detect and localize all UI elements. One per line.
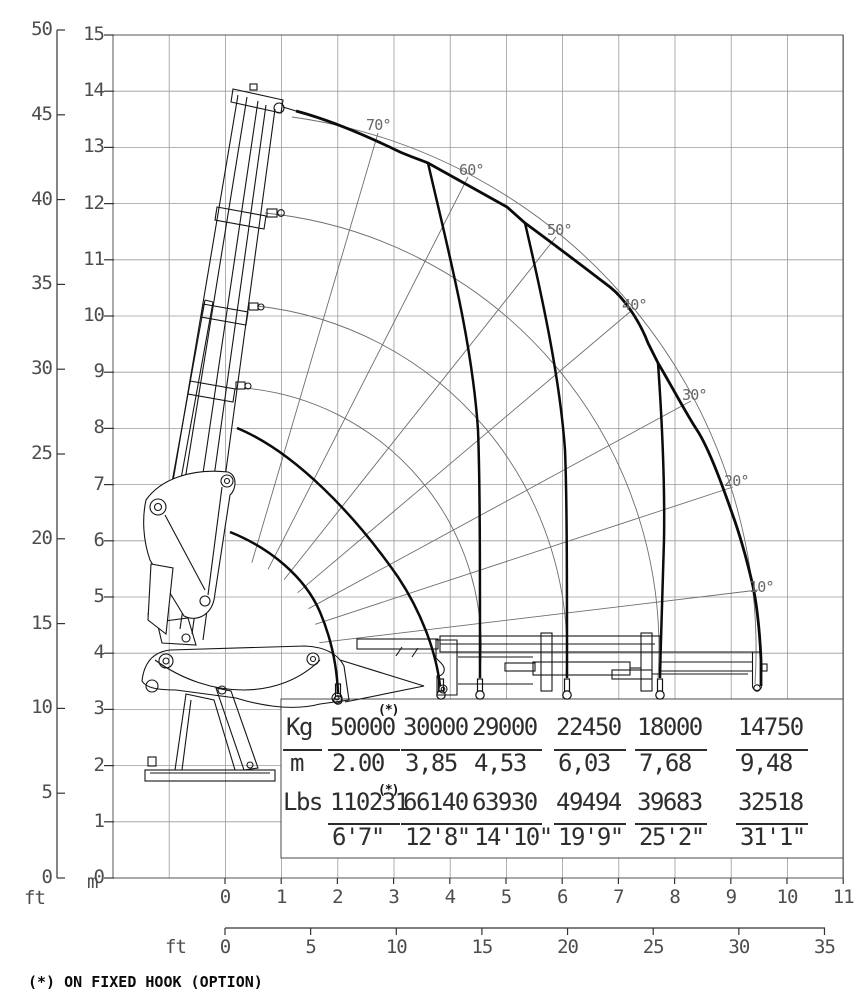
table-lbs-unit: Lbs [283, 790, 322, 814]
table-ft-value: 14'10" [474, 825, 552, 849]
bottom-m-tick-label: 2 [332, 888, 342, 907]
left-m-axis-unit: m [87, 873, 97, 892]
bottom-ft-tick-label: 30 [728, 938, 749, 957]
left-m-tick-label: 15 [83, 25, 104, 44]
table-ft-value: 25'2" [639, 825, 704, 849]
left-m-tick-label: 12 [83, 194, 104, 213]
bottom-ft-tick-label: 0 [220, 938, 230, 957]
left-ft-tick-label: 5 [42, 783, 52, 802]
table-m-value: 7,68 [639, 751, 691, 775]
bottom-m-tick-label: 6 [557, 888, 567, 907]
boom-angle-label: 40° [622, 298, 647, 313]
boom-angle-label: 70° [366, 118, 391, 133]
left-m-tick-label: 14 [83, 81, 104, 100]
left-m-tick-label: 2 [94, 756, 104, 775]
table-lbs-value: 49494 [556, 790, 621, 814]
table-ft-value: 6'7" [332, 825, 384, 849]
table-kg-value: 18000 [637, 715, 702, 739]
table-m-value: 4,53 [474, 751, 526, 775]
bottom-m-tick-label: 1 [276, 888, 286, 907]
left-ft-tick-label: 40 [31, 190, 52, 209]
bottom-ft-tick-label: 10 [386, 938, 407, 957]
boom-angle-label: 20° [724, 474, 749, 489]
bottom-ft-tick-label: 15 [471, 938, 492, 957]
bottom-m-tick-label: 5 [501, 888, 511, 907]
bottom-m-tick-label: 4 [445, 888, 455, 907]
bottom-ft-axis-unit: ft [165, 938, 186, 957]
boom-angle-label: 30° [682, 388, 707, 403]
crane-load-diagram: 0510152025303540455001234567891011121314… [0, 0, 864, 1000]
boom-angle-label: 10° [749, 580, 774, 595]
bottom-m-tick-label: 3 [388, 888, 398, 907]
left-ft-tick-label: 35 [31, 274, 52, 293]
left-m-tick-label: 7 [94, 475, 104, 494]
bottom-m-tick-label: 11 [833, 888, 854, 907]
table-m-value: 9,48 [740, 751, 792, 775]
left-m-tick-label: 10 [83, 306, 104, 325]
table-kg-value: 50000 [330, 715, 395, 739]
left-ft-tick-label: 10 [31, 698, 52, 717]
table-m-unit: m [290, 751, 303, 775]
bottom-m-tick-label: 0 [220, 888, 230, 907]
boom-angle-label: 60° [459, 163, 484, 178]
left-ft-tick-label: 20 [31, 529, 52, 548]
table-lbs-value: 32518 [738, 790, 803, 814]
table-m-value: 2.00 [332, 751, 384, 775]
bottom-ft-tick-label: 5 [305, 938, 315, 957]
left-m-tick-label: 1 [94, 812, 104, 831]
bottom-m-tick-label: 9 [726, 888, 736, 907]
table-kg-value: 14750 [738, 715, 803, 739]
left-m-tick-label: 9 [94, 362, 104, 381]
left-m-tick-label: 13 [83, 137, 104, 156]
table-ft-value: 12'8" [405, 825, 470, 849]
left-ft-tick-label: 25 [31, 444, 52, 463]
bottom-m-tick-label: 7 [613, 888, 623, 907]
table-kg-value: 22450 [556, 715, 621, 739]
left-m-tick-label: 11 [83, 250, 104, 269]
fixed-hook-star: (*) [378, 784, 398, 797]
left-m-tick-label: 5 [94, 587, 104, 606]
footnote: (*) ON FIXED HOOK (OPTION) [28, 973, 263, 991]
left-m-tick-label: 8 [94, 418, 104, 437]
bottom-m-tick-label: 10 [777, 888, 798, 907]
left-ft-tick-label: 15 [31, 614, 52, 633]
capacity-line-6-03m [525, 223, 567, 678]
left-m-tick-label: 3 [94, 699, 104, 718]
table-kg-value: 29000 [472, 715, 537, 739]
boom-angle-label: 50° [547, 223, 572, 238]
table-kg-unit: Kg [286, 715, 312, 739]
table-lbs-value: 39683 [637, 790, 702, 814]
table-kg-value: 30000 [403, 715, 468, 739]
table-m-value: 6,03 [558, 751, 610, 775]
table-lbs-value: 63930 [472, 790, 537, 814]
table-ft-value: 19'9" [558, 825, 623, 849]
left-ft-tick-label: 45 [31, 105, 52, 124]
bottom-m-tick-label: 8 [669, 888, 679, 907]
left-m-tick-label: 6 [94, 531, 104, 550]
fixed-hook-star: (*) [378, 704, 398, 717]
table-lbs-value: 66140 [403, 790, 468, 814]
left-ft-tick-label: 0 [42, 868, 52, 887]
bottom-ft-tick-label: 35 [814, 938, 835, 957]
bottom-ft-tick-label: 20 [557, 938, 578, 957]
left-ft-axis-unit: ft [24, 889, 45, 908]
left-ft-tick-label: 30 [31, 359, 52, 378]
bottom-ft-tick-label: 25 [643, 938, 664, 957]
left-m-tick-label: 4 [94, 643, 104, 662]
capacity-line-2m [230, 532, 338, 694]
table-ft-value: 31'1" [740, 825, 805, 849]
left-ft-tick-label: 50 [31, 20, 52, 39]
table-m-value: 3,85 [405, 751, 457, 775]
